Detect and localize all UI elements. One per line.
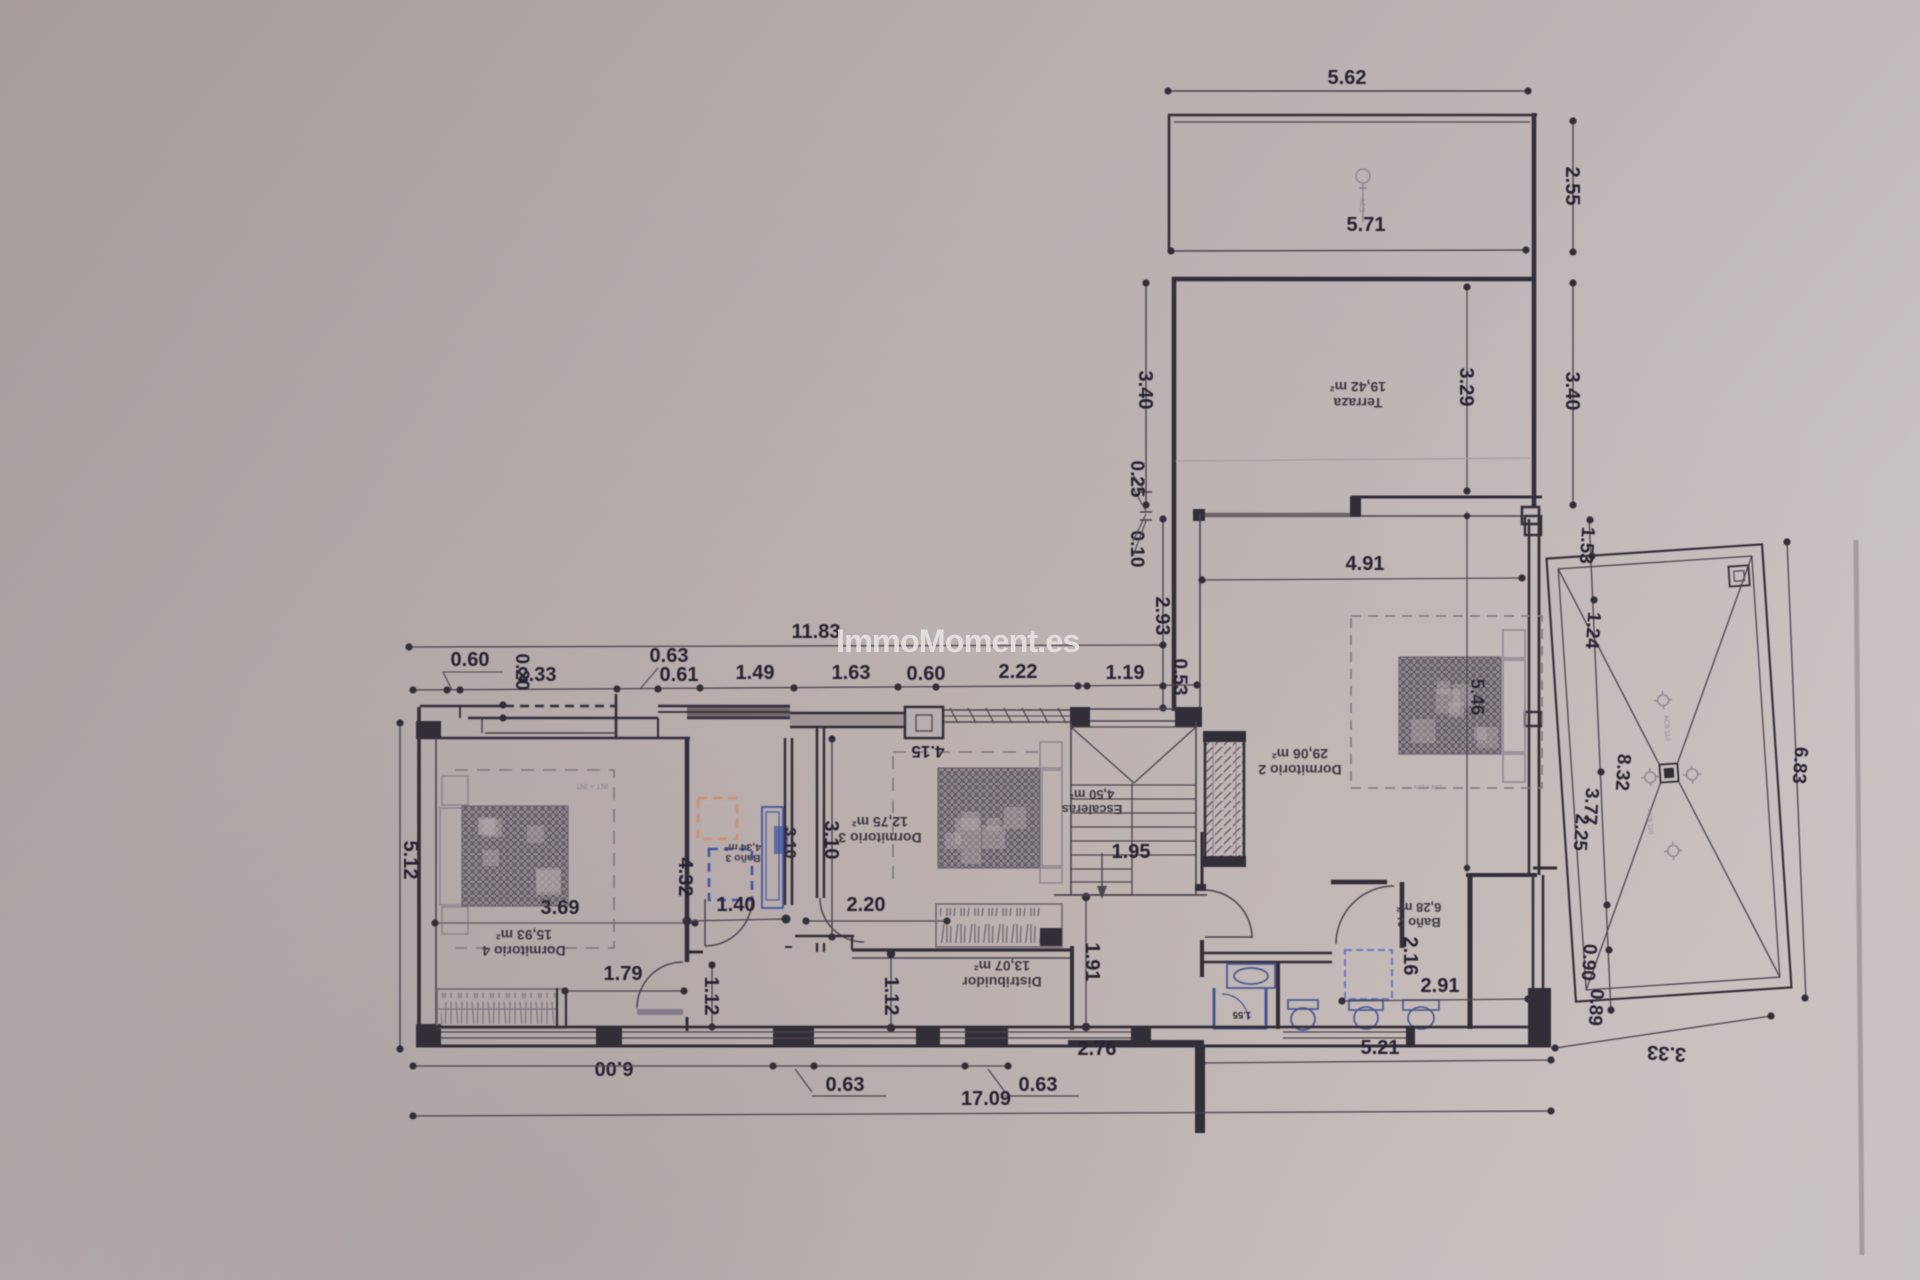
svg-text:0.10: 0.10	[1126, 531, 1147, 568]
svg-text:1.40: 1.40	[717, 894, 756, 916]
svg-text:2.22: 2.22	[999, 661, 1038, 683]
svg-text:5.46: 5.46	[1466, 679, 1487, 716]
svg-text:8.32: 8.32	[1611, 753, 1635, 791]
svg-text:0.60: 0.60	[451, 649, 490, 671]
svg-text:4,50 m²: 4,50 m²	[1069, 787, 1114, 802]
svg-text:6,28 m²: 6,28 m²	[1396, 900, 1441, 915]
svg-text:2.55: 2.55	[1561, 167, 1583, 206]
svg-text:11.83: 11.83	[792, 621, 841, 643]
svg-text:3.29: 3.29	[1455, 368, 1477, 407]
svg-text:5.12: 5.12	[399, 841, 421, 880]
svg-text:2.25: 2.25	[1569, 813, 1593, 852]
svg-text:0.60: 0.60	[907, 663, 946, 685]
svg-text:3.10: 3.10	[820, 821, 842, 860]
svg-text:1.63: 1.63	[832, 662, 871, 684]
svg-text:0.89: 0.89	[1584, 988, 1608, 1026]
svg-text:1.24: 1.24	[1581, 611, 1605, 650]
svg-text:1.91: 1.91	[1081, 943, 1103, 982]
svg-text:4.91: 4.91	[1346, 553, 1385, 575]
svg-text:1.12: 1.12	[700, 977, 722, 1016]
svg-text:ACS: ACS	[1358, 198, 1365, 213]
svg-text:3.10: 3.10	[781, 827, 798, 858]
svg-text:15,93 m²: 15,93 m²	[496, 927, 552, 943]
svg-text:1.12: 1.12	[880, 977, 902, 1016]
svg-text:0.53: 0.53	[1169, 659, 1190, 696]
svg-text:5.62: 5.62	[1328, 67, 1367, 89]
svg-text:0.25: 0.25	[1126, 461, 1147, 498]
svg-text:2.91: 2.91	[1421, 975, 1460, 997]
svg-text:INT + INT: INT + INT	[575, 782, 608, 791]
svg-text:5.71: 5.71	[1347, 214, 1386, 236]
svg-text:3.69: 3.69	[541, 897, 580, 919]
svg-text:ImmoMoment.es: ImmoMoment.es	[836, 623, 1079, 659]
svg-text:2.33: 2.33	[518, 664, 557, 686]
svg-text:2.76: 2.76	[1078, 1038, 1117, 1060]
svg-text:0.63: 0.63	[826, 1074, 865, 1096]
svg-text:2.16: 2.16	[1399, 937, 1421, 976]
svg-text:19,42 m²: 19,42 m²	[1330, 379, 1386, 395]
svg-text:1.95: 1.95	[1112, 841, 1151, 863]
svg-text:4,34 m²: 4,34 m²	[724, 841, 761, 853]
svg-text:6.00: 6.00	[595, 1057, 634, 1079]
svg-text:LIN + LIN: LIN + LIN	[1414, 783, 1442, 790]
svg-text:17.09: 17.09	[961, 1088, 1011, 1110]
svg-text:13,07 m²: 13,07 m²	[974, 958, 1030, 974]
svg-text:2.93: 2.93	[1151, 597, 1173, 636]
svg-text:4.15: 4.15	[911, 742, 944, 761]
svg-text:2.20: 2.20	[847, 894, 886, 916]
svg-text:12,75 m²: 12,75 m²	[852, 814, 908, 830]
svg-text:5.21: 5.21	[1361, 1037, 1400, 1059]
svg-text:4.32: 4.32	[674, 858, 696, 897]
svg-text:Dormitorio 3: Dormitorio 3	[838, 830, 921, 846]
svg-text:0.61: 0.61	[660, 664, 699, 686]
svg-text:1.49: 1.49	[736, 662, 775, 684]
svg-text:Terraza: Terraza	[1333, 395, 1382, 411]
svg-text:3.40: 3.40	[1561, 372, 1583, 411]
svg-text:0.90: 0.90	[1577, 943, 1601, 981]
svg-text:1.55: 1.55	[1232, 1009, 1251, 1020]
svg-text:Distribuidor: Distribuidor	[962, 974, 1042, 990]
svg-text:29,06 m²: 29,06 m²	[1272, 746, 1328, 762]
svg-text:Escaleras: Escaleras	[1062, 802, 1123, 817]
svg-text:0.63: 0.63	[1019, 1074, 1058, 1096]
svg-text:1.19: 1.19	[1106, 662, 1145, 684]
svg-text:1.53: 1.53	[1575, 526, 1599, 564]
svg-text:1.79: 1.79	[604, 963, 643, 985]
svg-text:Dormitorio 4: Dormitorio 4	[482, 943, 565, 959]
svg-text:Dormitorio 2: Dormitorio 2	[1258, 762, 1341, 778]
svg-text:6.83: 6.83	[1788, 746, 1812, 784]
svg-text:3.33: 3.33	[1646, 1041, 1686, 1066]
svg-text:3.40: 3.40	[1134, 371, 1156, 410]
svg-text:Baño 2: Baño 2	[1397, 915, 1440, 930]
